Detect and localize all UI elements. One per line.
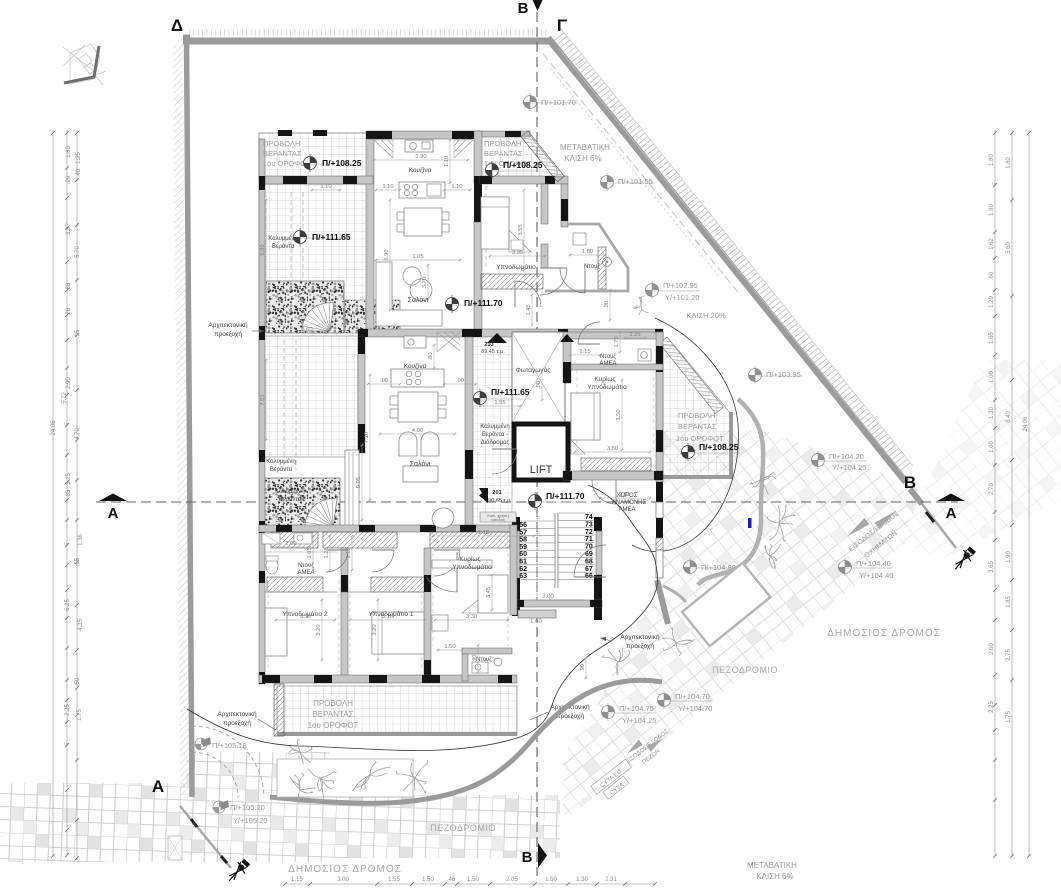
- svg-text:4.00: 4.00: [412, 428, 423, 434]
- svg-text:1.50: 1.50: [444, 644, 455, 650]
- svg-text:3.90: 3.90: [415, 154, 426, 160]
- svg-text:2.75: 2.75: [1006, 649, 1012, 661]
- svg-text:Καλυμμένη: Καλυμμένη: [275, 488, 304, 495]
- svg-text:Υ/+104.40: Υ/+104.40: [859, 571, 893, 580]
- svg-text:1.80: 1.80: [1006, 157, 1012, 169]
- svg-text:5.05: 5.05: [356, 477, 362, 488]
- svg-text:4.35: 4.35: [78, 619, 84, 631]
- svg-text:Υ/+104.25: Υ/+104.25: [832, 463, 866, 472]
- svg-text:A: A: [108, 505, 119, 522]
- svg-text:Βεράντα: Βεράντα: [279, 496, 302, 503]
- svg-text:Γ: Γ: [557, 16, 567, 35]
- svg-text:61: 61: [519, 559, 527, 566]
- svg-text:3.00: 3.00: [337, 877, 349, 883]
- svg-text:Ντουζ: Ντουζ: [476, 657, 492, 663]
- svg-text:72: 72: [585, 529, 593, 536]
- svg-text:201: 201: [492, 490, 501, 496]
- svg-text:ΑΜΕΑ: ΑΜΕΑ: [599, 361, 616, 367]
- svg-text:Π/+104.70: Π/+104.70: [675, 692, 710, 701]
- svg-text:90.65 τ.μ.: 90.65 τ.μ.: [488, 498, 512, 504]
- svg-text:1.85: 1.85: [1006, 596, 1012, 608]
- svg-text:2.25: 2.25: [629, 332, 640, 338]
- svg-text:Π/+108.25: Π/+108.25: [322, 158, 362, 168]
- svg-text:ΜΕΤΑΒΑΤΙΚΗ: ΜΕΤΑΒΑΤΙΚΗ: [747, 861, 797, 870]
- svg-text:1.75: 1.75: [77, 709, 83, 721]
- svg-text:1.10: 1.10: [346, 547, 352, 558]
- svg-text:56: 56: [519, 522, 527, 529]
- svg-text:.80: .80: [428, 352, 434, 360]
- svg-text:2.25: 2.25: [65, 704, 71, 716]
- svg-text:62: 62: [519, 566, 527, 573]
- svg-text:ΒΕΡΑΝΤΑΣ: ΒΕΡΑΝΤΑΣ: [263, 149, 302, 158]
- svg-text:3.60: 3.60: [301, 327, 312, 333]
- svg-text:προεξοχή: προεξοχή: [214, 331, 242, 338]
- svg-text:Π/+111.65: Π/+111.65: [491, 387, 530, 397]
- svg-text:3.35: 3.35: [512, 250, 523, 256]
- svg-text:A: A: [946, 505, 957, 522]
- svg-text:ΒΕΡΑΝΤΑΣ: ΒΕΡΑΝΤΑΣ: [678, 422, 717, 431]
- svg-text:.90: .90: [580, 664, 586, 672]
- svg-text:57: 57: [519, 529, 527, 536]
- svg-text:ΔΗΜΟΣΙΟΣ ΔΡΟΜΟΣ: ΔΗΜΟΣΙΟΣ ΔΡΟΜΟΣ: [288, 864, 402, 875]
- svg-text:59: 59: [519, 544, 527, 551]
- svg-text:5.70: 5.70: [75, 246, 81, 258]
- svg-text:1.10: 1.10: [478, 530, 489, 536]
- svg-text:2.31: 2.31: [605, 877, 617, 883]
- svg-text:2.70: 2.70: [989, 483, 995, 495]
- svg-text:ΔΗΜΟΣΙΟΣ ΔΡΟΜΟΣ: ΔΗΜΟΣΙΟΣ ΔΡΟΜΟΣ: [827, 628, 941, 639]
- svg-text:Π/+111.65: Π/+111.65: [312, 232, 351, 242]
- svg-text:Υ/+105.20: Υ/+105.20: [233, 816, 267, 825]
- svg-text:5.60: 5.60: [1006, 242, 1012, 254]
- svg-text:1.50: 1.50: [467, 877, 479, 883]
- svg-text:4.70: 4.70: [75, 428, 81, 440]
- svg-text:3.30: 3.30: [466, 614, 477, 620]
- svg-text:2.25: 2.25: [989, 701, 995, 713]
- svg-text:Π/+104.40: Π/+104.40: [856, 559, 891, 568]
- svg-text:2.90: 2.90: [66, 377, 72, 389]
- svg-text:Π/+108.25: Π/+108.25: [503, 160, 543, 170]
- svg-text:3.50: 3.50: [607, 446, 618, 452]
- svg-text:6.25: 6.25: [65, 599, 71, 611]
- svg-text:Ντουζ: Ντουζ: [584, 264, 600, 270]
- svg-text:1.30: 1.30: [989, 407, 995, 419]
- svg-text:1.05: 1.05: [412, 254, 423, 260]
- svg-text:1.70: 1.70: [614, 336, 620, 347]
- svg-text:2.60: 2.60: [989, 643, 995, 655]
- svg-text:3.65: 3.65: [989, 561, 995, 573]
- svg-text:Κουζίνα: Κουζίνα: [404, 362, 427, 370]
- svg-text:ΚΛΙΣΗ 20%: ΚΛΙΣΗ 20%: [686, 311, 726, 320]
- svg-text:1.25: 1.25: [76, 152, 82, 164]
- svg-text:B: B: [904, 473, 916, 492]
- svg-text:Δ: Δ: [171, 16, 183, 35]
- svg-text:Καλυμμένη: Καλυμμένη: [266, 458, 295, 465]
- svg-text:.88: .88: [66, 282, 72, 291]
- svg-text:προεξοχή: προεξοχή: [223, 720, 251, 727]
- svg-text:Φωταγωγός: Φωταγωγός: [516, 366, 551, 374]
- svg-text:6.90: 6.90: [384, 249, 390, 260]
- svg-text:7.10: 7.10: [364, 432, 370, 443]
- svg-text:3.00: 3.00: [542, 594, 554, 600]
- svg-text:Αρχιτεκτονική: Αρχιτεκτονική: [208, 322, 248, 329]
- svg-text:1.80: 1.80: [582, 249, 593, 255]
- svg-text:74: 74: [585, 514, 593, 521]
- svg-text:1.45: 1.45: [526, 304, 532, 315]
- svg-text:68: 68: [585, 558, 593, 565]
- svg-text:1.00: 1.00: [989, 371, 995, 383]
- svg-text:1.10: 1.10: [451, 184, 462, 190]
- svg-text:.90: .90: [456, 378, 464, 384]
- svg-text:Κυρίως: Κυρίως: [594, 375, 615, 383]
- svg-text:24.06: 24.06: [1023, 416, 1029, 432]
- svg-text:1.10: 1.10: [444, 156, 450, 167]
- svg-text:Βεράντα: Βεράντα: [272, 243, 295, 250]
- svg-text:.60: .60: [989, 271, 995, 280]
- svg-text:Ντουζ: Ντουζ: [600, 354, 616, 360]
- svg-text:Υ/+101.20: Υ/+101.20: [665, 293, 699, 302]
- svg-text:Π/+111.70: Π/+111.70: [464, 298, 503, 308]
- svg-text:Π/+102.95: Π/+102.95: [663, 281, 698, 290]
- svg-text:Π/+108.25: Π/+108.25: [699, 442, 739, 452]
- svg-text:.90: .90: [604, 301, 610, 309]
- svg-text:.90: .90: [536, 381, 542, 389]
- svg-text:.85: .85: [66, 489, 72, 498]
- svg-text:Αρχιτεκτονική: Αρχιτεκτονική: [620, 634, 660, 641]
- svg-text:Καλυμμένη: Καλυμμένη: [480, 423, 509, 430]
- svg-text:3.70: 3.70: [422, 277, 428, 288]
- svg-text:24.06: 24.06: [51, 420, 57, 436]
- svg-text:1.90: 1.90: [989, 204, 995, 216]
- svg-text:8.40: 8.40: [1006, 411, 1012, 423]
- svg-text:Υ/+104.70: Υ/+104.70: [678, 704, 712, 713]
- svg-text:5.72: 5.72: [62, 392, 68, 404]
- svg-text:Π/+111.70: Π/+111.70: [546, 491, 585, 501]
- svg-text:Π/+105.18: Π/+105.18: [212, 741, 247, 750]
- svg-text:3.20: 3.20: [372, 624, 378, 635]
- svg-text:ΠΡΟΒΟΛΗ: ΠΡΟΒΟΛΗ: [484, 139, 521, 148]
- svg-text:63: 63: [519, 573, 527, 580]
- svg-text:2.00: 2.00: [285, 541, 296, 547]
- svg-text:1.10: 1.10: [320, 184, 331, 190]
- svg-text:1.80: 1.80: [66, 146, 72, 158]
- svg-text:203: 203: [484, 342, 493, 348]
- svg-text:.40: .40: [76, 168, 82, 177]
- svg-text:LIFT: LIFT: [530, 464, 553, 476]
- svg-text:7.55: 7.55: [260, 394, 266, 405]
- svg-text:Π/+104.75: Π/+104.75: [619, 704, 654, 713]
- svg-text:Διάδρομος: Διάδρομος: [481, 439, 510, 446]
- svg-text:Ντουζ: Ντουζ: [298, 563, 314, 569]
- svg-text:1.60: 1.60: [530, 619, 542, 625]
- svg-text:.90: .90: [472, 654, 478, 662]
- svg-text:1.30: 1.30: [576, 877, 588, 883]
- svg-text:5.80: 5.80: [260, 244, 266, 255]
- svg-text:B: B: [518, 0, 529, 17]
- svg-text:1.55: 1.55: [494, 400, 505, 406]
- svg-text:ΠΕΖΟΔΡΟΜΙΟ: ΠΕΖΟΔΡΟΜΙΟ: [430, 823, 496, 833]
- svg-text:71: 71: [585, 536, 593, 543]
- svg-text:.26: .26: [66, 307, 72, 316]
- svg-text:3.10: 3.10: [300, 614, 311, 620]
- svg-text:Αρχιτεκτονική: Αρχιτεκτονική: [217, 711, 257, 718]
- svg-text:1.50: 1.50: [422, 877, 434, 883]
- svg-text:60: 60: [519, 551, 527, 558]
- svg-text:εισοδος: εισοδος: [491, 517, 505, 522]
- svg-text:Υπνοδωμάτιο: Υπνοδωμάτιο: [452, 563, 492, 571]
- svg-text:.46: .46: [447, 877, 456, 883]
- svg-text:1.55: 1.55: [388, 877, 400, 883]
- svg-text:2.55: 2.55: [619, 492, 630, 498]
- svg-text:.29: .29: [66, 175, 72, 184]
- svg-text:3.55: 3.55: [518, 224, 524, 235]
- svg-text:1.85: 1.85: [307, 547, 313, 558]
- svg-text:Π/+101.95: Π/+101.95: [618, 177, 653, 186]
- svg-text:προεξοχή: προεξοχή: [626, 643, 654, 650]
- svg-text:ΑΝΑΜΟΝΗΣ: ΑΝΑΜΟΝΗΣ: [612, 500, 647, 506]
- svg-text:1.25: 1.25: [324, 547, 330, 558]
- svg-text:ΚΛΙΣΗ 6%: ΚΛΙΣΗ 6%: [564, 154, 601, 163]
- svg-text:ΠΡΟΒΟΛΗ: ΠΡΟΒΟΛΗ: [263, 139, 300, 148]
- svg-text:3.87: 3.87: [66, 223, 72, 235]
- svg-text:67: 67: [585, 566, 593, 573]
- svg-text:A: A: [152, 777, 164, 796]
- svg-text:Π/+104.20: Π/+104.20: [829, 452, 864, 461]
- svg-text:.55: .55: [75, 557, 81, 566]
- svg-text:.90: .90: [380, 378, 388, 384]
- svg-text:ΜΕΤΑΒΑΤΙΚΗ: ΜΕΤΑΒΑΤΙΚΗ: [560, 143, 610, 152]
- svg-text:1.65: 1.65: [989, 332, 995, 344]
- svg-text:3.25: 3.25: [66, 473, 72, 485]
- svg-text:1.15: 1.15: [291, 877, 303, 883]
- svg-text:58: 58: [519, 537, 527, 544]
- svg-text:B: B: [522, 849, 533, 866]
- svg-text:1.90: 1.90: [1006, 551, 1012, 563]
- svg-text:Βεράντα: Βεράντα: [270, 466, 293, 473]
- svg-text:1.15: 1.15: [579, 349, 590, 355]
- svg-text:Υπνοδωμάτιο: Υπνοδωμάτιο: [496, 263, 536, 271]
- svg-text:Υπνοδωμάτιο: Υπνοδωμάτιο: [587, 383, 627, 391]
- svg-text:1.36: 1.36: [78, 534, 84, 546]
- svg-text:Π/+101.70: Π/+101.70: [541, 98, 576, 107]
- svg-text:Βεράντα -: Βεράντα -: [482, 431, 508, 438]
- svg-text:1.00: 1.00: [989, 441, 995, 453]
- svg-text:1.10: 1.10: [382, 184, 393, 190]
- svg-text:1ου ΟΡΟΦΟΤ: 1ου ΟΡΟΦΟΤ: [308, 721, 359, 730]
- svg-text:.50: .50: [75, 677, 81, 686]
- svg-text:ΒΕΡΑΝΤΑΣ: ΒΕΡΑΝΤΑΣ: [312, 710, 353, 719]
- svg-text:ΠΕΖΟΔΡΟΜΙΟ: ΠΕΖΟΔΡΟΜΙΟ: [712, 665, 778, 675]
- svg-text:ΚΛΙΣΗ 6%: ΚΛΙΣΗ 6%: [756, 872, 793, 881]
- svg-text:1.80: 1.80: [989, 154, 995, 166]
- svg-text:Σαλόνι: Σαλόνι: [408, 296, 429, 304]
- svg-text:Κυρίως: Κυρίως: [459, 555, 480, 563]
- svg-text:3.20: 3.20: [316, 624, 322, 635]
- svg-text:89.45 τ.μ.: 89.45 τ.μ.: [481, 349, 505, 355]
- svg-text:Κουζίνα: Κουζίνα: [409, 166, 432, 174]
- svg-text:73: 73: [585, 521, 593, 528]
- svg-text:Π/+105.20: Π/+105.20: [230, 803, 265, 812]
- svg-text:Σαλόνι: Σαλόνι: [410, 460, 431, 468]
- svg-text:Π/+103.95: Π/+103.95: [766, 370, 801, 379]
- svg-text:1.62: 1.62: [989, 238, 995, 250]
- svg-text:3.10: 3.10: [382, 614, 393, 620]
- svg-text:1.75: 1.75: [1006, 711, 1012, 723]
- svg-text:Υ/+104.25: Υ/+104.25: [622, 716, 656, 725]
- svg-text:ΒΕΡΑΝΤΑΣ: ΒΕΡΑΝΤΑΣ: [484, 149, 523, 158]
- svg-text:3.50: 3.50: [616, 409, 622, 420]
- svg-text:3.45: 3.45: [486, 587, 492, 598]
- svg-text:.95: .95: [75, 329, 81, 338]
- svg-text:ΠΡΟΒΟΛΗ: ΠΡΟΒΟΛΗ: [678, 411, 715, 420]
- svg-text:1.50: 1.50: [545, 877, 557, 883]
- svg-text:2.05: 2.05: [506, 877, 518, 883]
- svg-text:1.20: 1.20: [989, 296, 995, 308]
- svg-text:ΠΡΟΒΟΛΗ: ΠΡΟΒΟΛΗ: [313, 699, 353, 708]
